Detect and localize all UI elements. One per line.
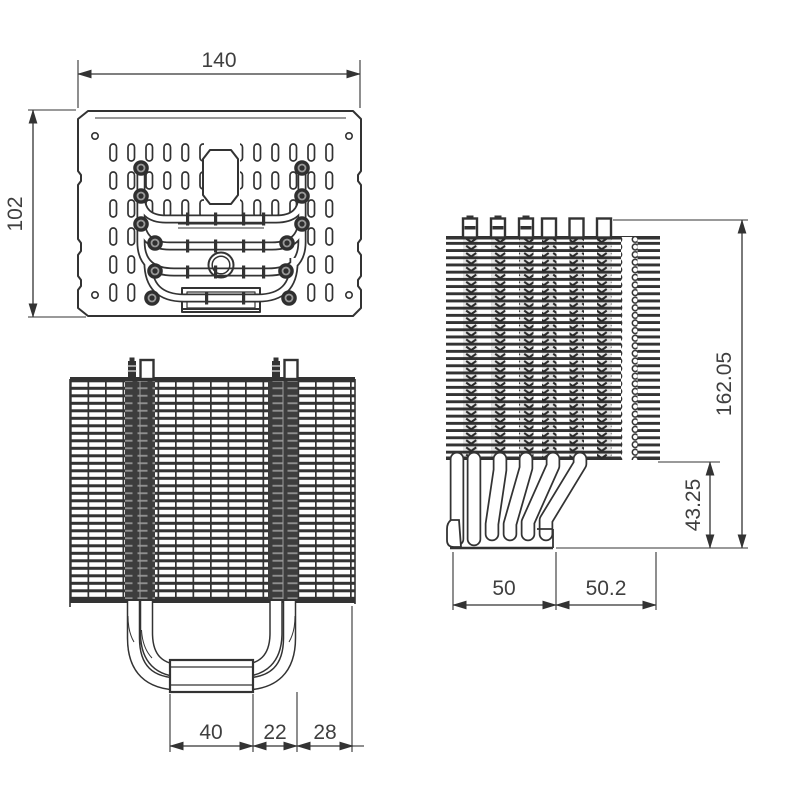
octagon-cutout [203,150,238,204]
side-rear-pipe-scallop [621,237,638,460]
dim-side-depth: 50 50.2 [453,552,656,610]
screw-hole [92,133,98,139]
dim-top-height: 102 [4,110,86,317]
front-base-plate [170,660,253,692]
dim-label-height: 102 [4,196,27,231]
side-view: 162.05 43.25 50 50.2 [446,216,748,611]
dim-label-width: 140 [201,49,236,72]
dim-label-front-depth: 50 [492,577,515,600]
dim-label-total-height: 162.05 [713,352,736,416]
front-heatpipe-band-right [268,381,298,599]
dim-top-width: 140 [78,49,360,108]
dim-label-base-height: 43.25 [682,479,705,532]
top-view: 140 102 [4,49,361,317]
front-view: 40 22 28 [70,358,364,753]
dim-label-pipe-span: 22 [263,721,286,744]
dim-label-edge-offset: 28 [313,721,336,744]
screw-hole [346,292,352,298]
dim-label-rear-depth: 50.2 [586,577,627,600]
front-fin-stack [70,377,355,607]
screw-hole [346,133,352,139]
front-pipe-tips [128,358,298,380]
screw-hole [92,292,98,298]
technical-drawing-cpu-cooler: 140 102 [0,0,800,800]
side-bottom-pipes [457,459,580,539]
dim-label-base-width: 40 [199,721,222,744]
dim-side-base-height: 43.25 [658,462,720,548]
side-pipe-tips [463,216,611,238]
drawing-svg: 140 102 [0,0,800,800]
front-heatpipe-band-left [125,381,155,599]
